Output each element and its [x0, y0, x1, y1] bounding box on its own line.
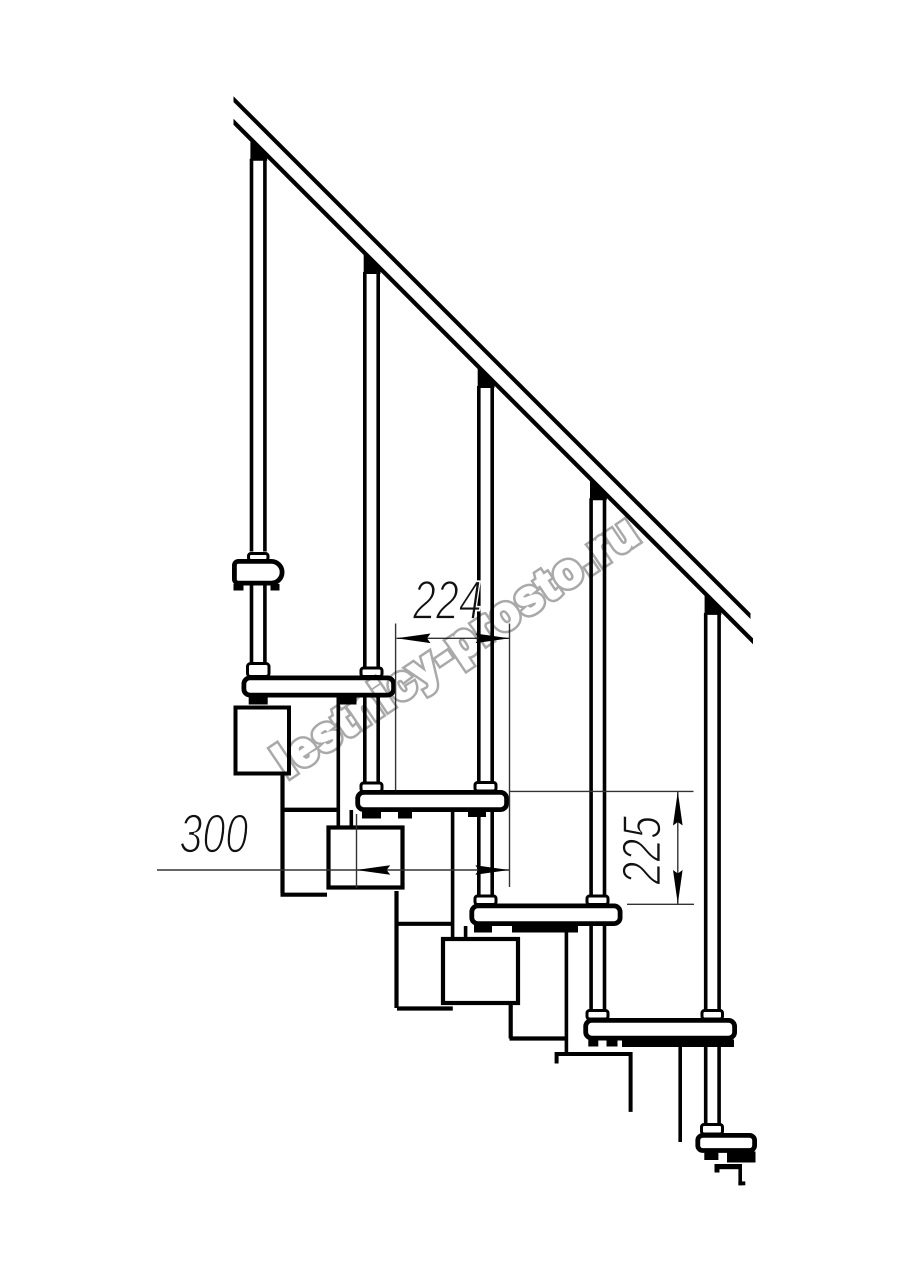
svg-text:225: 225 — [612, 815, 673, 885]
svg-text:300: 300 — [179, 804, 248, 865]
